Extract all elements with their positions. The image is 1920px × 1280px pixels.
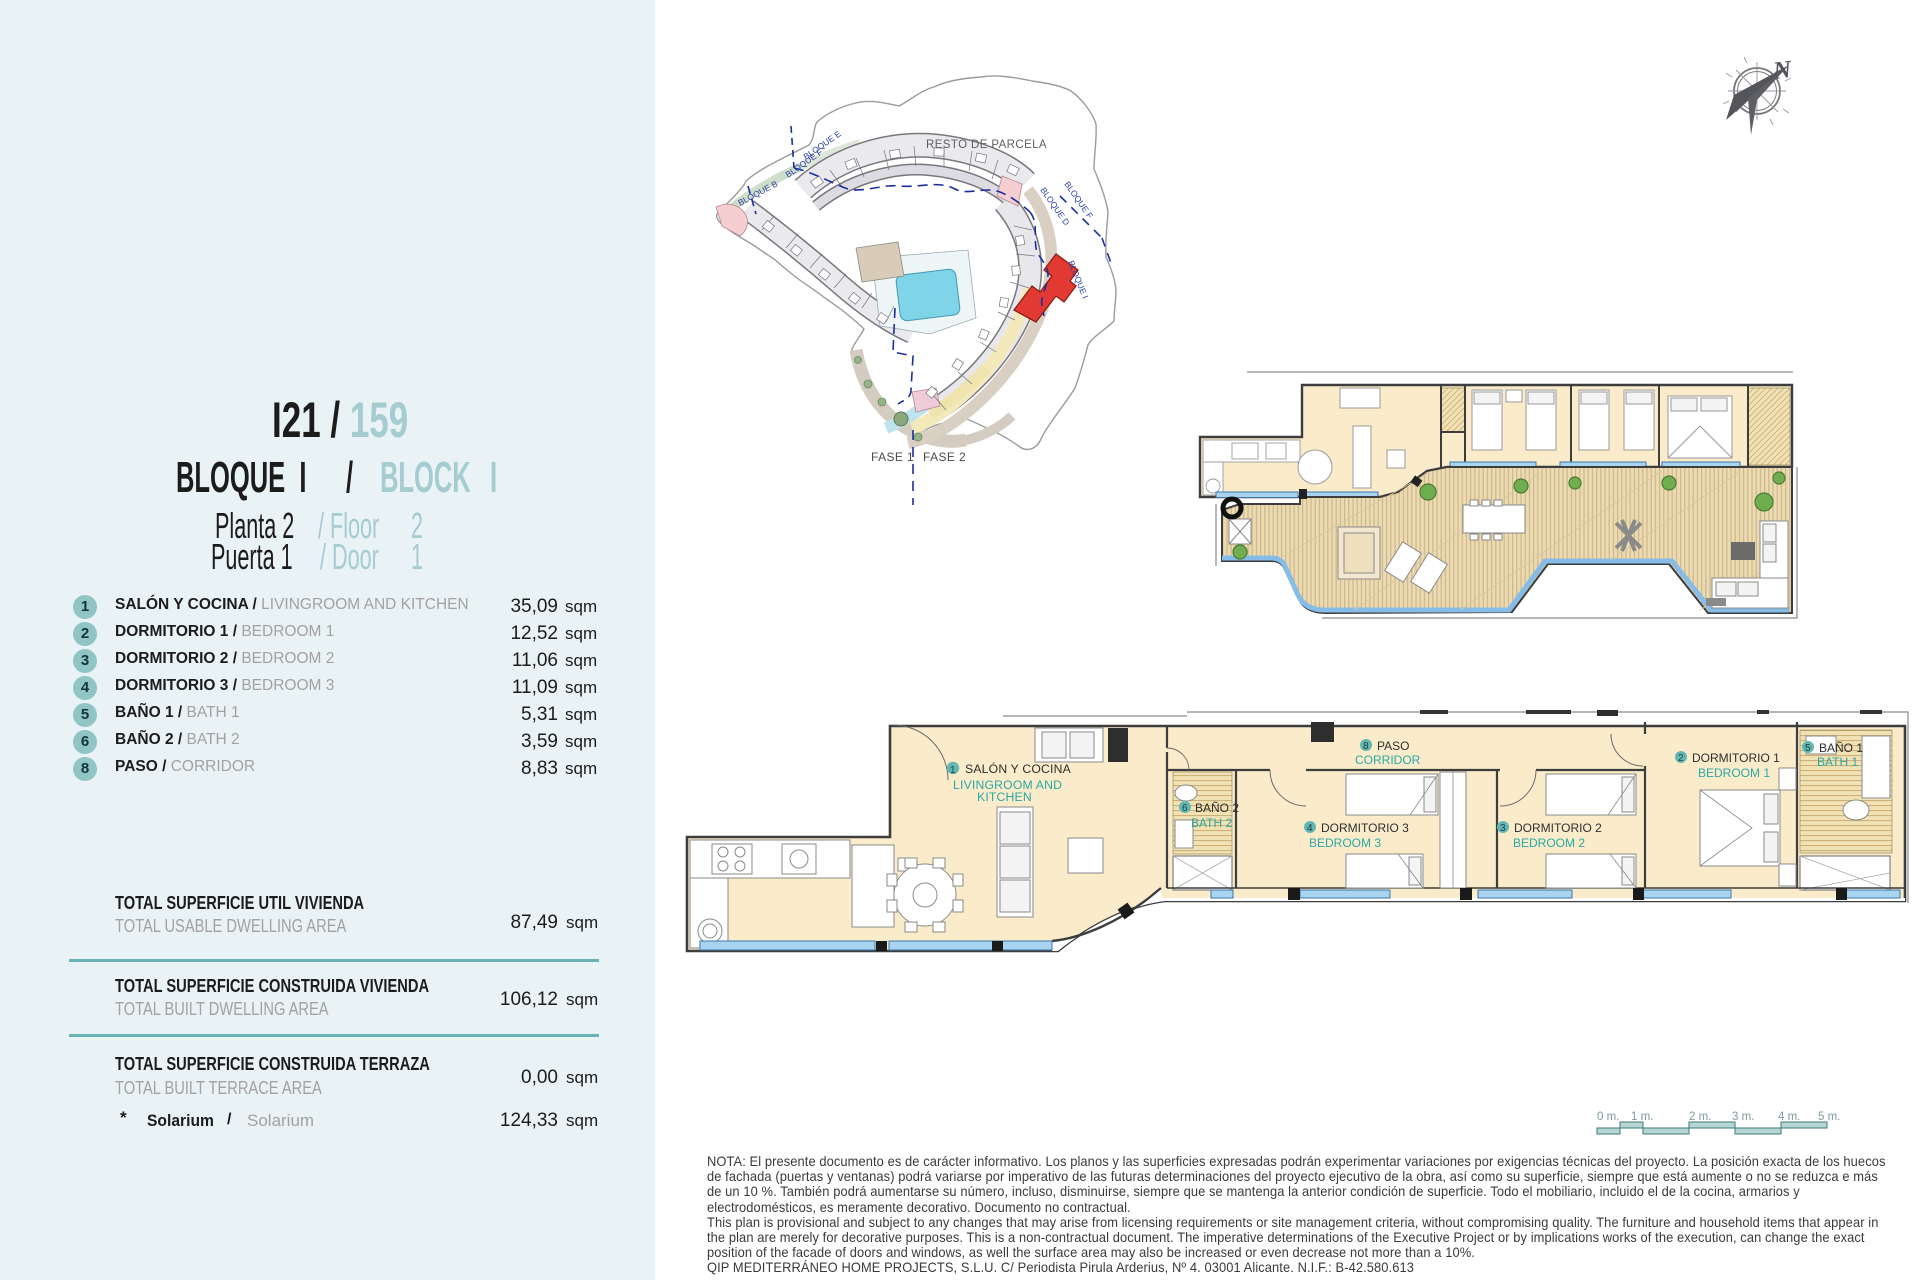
svg-text:N: N [1771,56,1794,85]
svg-text:BAÑO 2: BAÑO 2 [1195,801,1239,815]
svg-text:5: 5 [1805,743,1811,754]
svg-text:1: 1 [950,765,956,776]
svg-text:CORRIDOR: CORRIDOR [1355,753,1421,767]
svg-text:RESTO DE PARCELA: RESTO DE PARCELA [926,139,1047,151]
svg-text:DORMITORIO 3: DORMITORIO 3 [1321,821,1409,835]
svg-text:1 m.: 1 m. [1631,1111,1653,1123]
svg-text:4: 4 [1307,823,1313,834]
svg-text:8: 8 [1363,741,1369,752]
svg-text:PASO: PASO [1377,739,1409,753]
svg-text:2 m.: 2 m. [1689,1111,1711,1123]
svg-text:3 m.: 3 m. [1732,1111,1754,1123]
svg-text:3: 3 [1500,823,1506,834]
svg-text:FASE 1: FASE 1 [871,450,914,464]
svg-text:BAÑO 1: BAÑO 1 [1819,741,1863,755]
svg-text:DORMITORIO 2: DORMITORIO 2 [1514,821,1602,835]
svg-text:2: 2 [1678,753,1684,764]
svg-text:FASE 2: FASE 2 [923,450,966,464]
svg-text:DORMITORIO 1: DORMITORIO 1 [1692,751,1780,765]
svg-text:4 m.: 4 m. [1778,1111,1800,1123]
svg-text:BATH 2: BATH 2 [1191,816,1232,830]
svg-text:6: 6 [1182,803,1188,814]
svg-text:BATH 1: BATH 1 [1817,755,1858,769]
svg-text:5 m.: 5 m. [1818,1111,1840,1123]
svg-text:BEDROOM 2: BEDROOM 2 [1513,836,1585,850]
svg-text:SALÓN Y COCINA: SALÓN Y COCINA [965,761,1072,776]
svg-text:KITCHEN: KITCHEN [977,790,1032,804]
svg-text:BEDROOM 1: BEDROOM 1 [1698,766,1770,780]
svg-text:0 m.: 0 m. [1597,1111,1619,1123]
svg-text:BEDROOM 3: BEDROOM 3 [1309,836,1381,850]
